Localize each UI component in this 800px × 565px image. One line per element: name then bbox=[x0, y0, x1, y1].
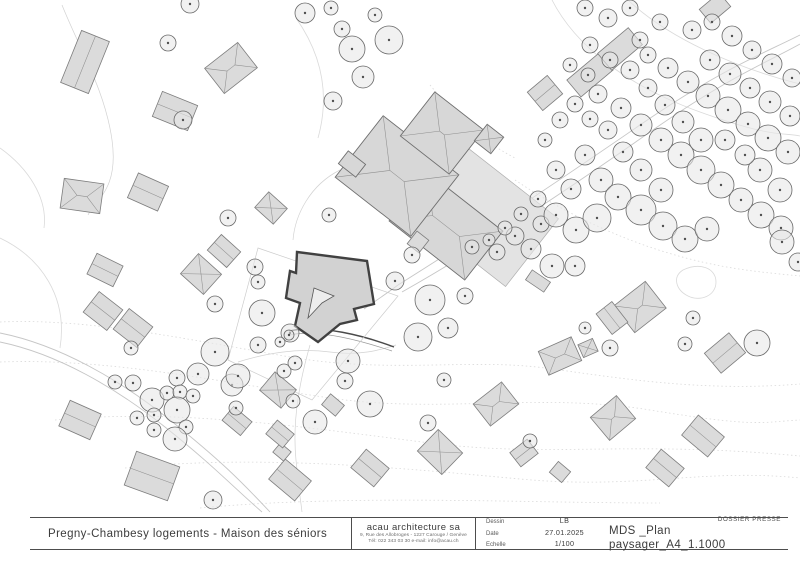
row-value: 1/100 bbox=[526, 539, 603, 549]
building bbox=[322, 394, 345, 416]
building bbox=[207, 234, 240, 267]
building bbox=[266, 420, 294, 448]
building bbox=[127, 173, 168, 211]
building bbox=[87, 253, 123, 286]
drawing-title: MDS _Plan paysager_A4_1.1000 bbox=[609, 524, 781, 552]
building bbox=[527, 75, 562, 110]
building bbox=[59, 400, 101, 439]
building bbox=[646, 449, 684, 487]
building bbox=[351, 449, 389, 487]
building bbox=[549, 461, 570, 482]
building bbox=[578, 338, 598, 357]
building bbox=[60, 178, 104, 213]
building bbox=[255, 192, 288, 224]
building bbox=[473, 382, 519, 426]
site-plan bbox=[0, 0, 800, 517]
document-id: DOSSIER PRESSE MDS _Plan paysager_A4_1.1… bbox=[609, 518, 788, 549]
table-row: Date 27.01.2025 bbox=[486, 528, 603, 540]
building bbox=[61, 30, 110, 93]
firm-name: acau architecture sa bbox=[352, 522, 475, 533]
row-label: Echelle bbox=[486, 541, 526, 551]
building bbox=[417, 429, 462, 474]
table-row: Echelle 1/100 bbox=[486, 539, 603, 551]
row-label: Date bbox=[486, 530, 526, 540]
building bbox=[704, 333, 745, 373]
building bbox=[538, 337, 581, 375]
building bbox=[269, 459, 312, 501]
building bbox=[124, 451, 180, 501]
dossier-type: DOSSIER PRESSE bbox=[718, 515, 781, 524]
building bbox=[590, 396, 635, 441]
row-value: LB bbox=[526, 516, 603, 526]
row-value: 27.01.2025 bbox=[526, 528, 603, 538]
building bbox=[180, 254, 221, 295]
neighbour-buildings bbox=[59, 0, 746, 501]
architect-info: acau architecture sa 9, Rue des Allobrog… bbox=[351, 518, 476, 549]
drawing-sheet: Pregny-Chambesy logements - Maison des s… bbox=[0, 0, 800, 565]
table-row: Dessin LB bbox=[486, 516, 603, 528]
firm-contact: Tél: 022 343 03 30 e-mail: info@acau.ch bbox=[352, 539, 475, 545]
drawing-info-table: Dessin LB Date 27.01.2025 Echelle 1/100 bbox=[476, 518, 609, 549]
title-block: Pregny-Chambesy logements - Maison des s… bbox=[30, 517, 788, 550]
project-building-maison-des-seniors bbox=[286, 252, 374, 342]
project-title: Pregny-Chambesy logements - Maison des s… bbox=[30, 518, 351, 549]
building bbox=[205, 42, 258, 93]
row-label: Dessin bbox=[486, 518, 526, 528]
